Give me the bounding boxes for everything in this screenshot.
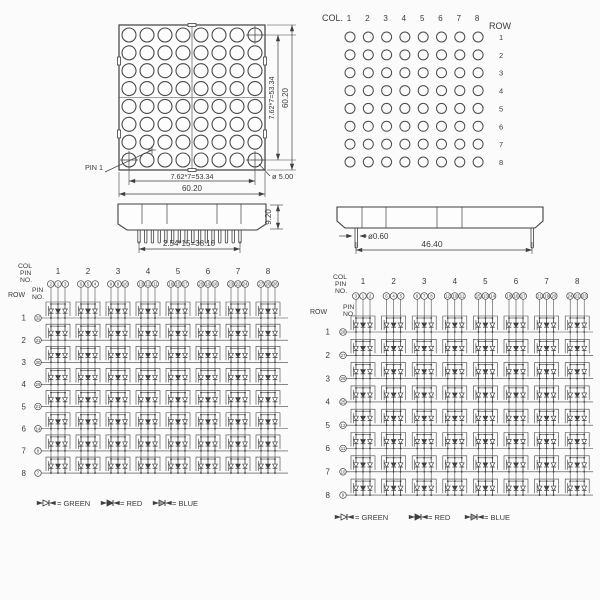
led-cell bbox=[196, 435, 220, 452]
led-cell bbox=[226, 413, 250, 430]
row-number: 2 bbox=[22, 336, 27, 345]
package-profile-side bbox=[337, 207, 543, 228]
led-pad bbox=[363, 121, 373, 131]
pin-number: 15 bbox=[476, 294, 481, 299]
led-cell bbox=[256, 302, 280, 319]
pin-number: 27 bbox=[341, 353, 346, 358]
led-cell bbox=[166, 413, 190, 430]
schL-legend-red-label: = RED bbox=[120, 499, 143, 508]
pin bbox=[232, 230, 234, 243]
back-view-panel: 1234567812345678 COL. ROW bbox=[322, 13, 512, 167]
pin-number: 11 bbox=[341, 446, 346, 451]
pin-number: 10 bbox=[123, 282, 128, 287]
dimension-arrow bbox=[259, 192, 265, 196]
led-cell bbox=[351, 363, 375, 380]
row-number: 5 bbox=[22, 402, 27, 411]
led-cell bbox=[504, 339, 528, 356]
pin-number: 22 bbox=[236, 282, 241, 287]
led-pad bbox=[437, 157, 447, 167]
dimension-arrow bbox=[276, 205, 280, 211]
dimension-arrow bbox=[139, 247, 145, 251]
led-cell bbox=[535, 316, 559, 333]
led-pad bbox=[363, 139, 373, 149]
front-view-panel: 7.62*7=53.34 60.20 7.62*7=53.34 60.20 ø … bbox=[85, 24, 296, 198]
led-cell bbox=[136, 391, 160, 408]
dimension-arrow bbox=[37, 501, 43, 505]
pin bbox=[151, 230, 153, 243]
led-pad bbox=[363, 103, 373, 113]
pin-number: 24 bbox=[243, 282, 248, 287]
led-cell bbox=[76, 368, 100, 385]
led-cell bbox=[166, 391, 190, 408]
led-cell bbox=[412, 363, 436, 380]
led-cell bbox=[196, 413, 220, 430]
pin-number: 14 bbox=[36, 426, 41, 431]
pin-number: 13 bbox=[138, 282, 143, 287]
led-cell bbox=[535, 363, 559, 380]
led-cell bbox=[412, 433, 436, 450]
front-dim-col-pitch: 7.62*7=53.34 bbox=[171, 172, 214, 181]
led-pad bbox=[455, 139, 465, 149]
side-view-front-panel: 2.54*15=38.10 9.20 bbox=[118, 204, 283, 253]
dimension-arrow bbox=[276, 154, 280, 160]
pin-number: 11 bbox=[153, 282, 158, 287]
schR-pin-no-1: PIN bbox=[343, 304, 354, 311]
pin-number: 16 bbox=[168, 282, 173, 287]
pin-number: 21 bbox=[537, 294, 542, 299]
led-cell bbox=[412, 409, 436, 426]
led-cell bbox=[443, 363, 467, 380]
dimension-arrow bbox=[465, 515, 471, 519]
led-pad bbox=[473, 86, 483, 96]
led-cell bbox=[256, 368, 280, 385]
pin-number: 30 bbox=[36, 360, 41, 365]
led-pad bbox=[473, 50, 483, 60]
led-cell bbox=[226, 435, 250, 452]
led-cell bbox=[382, 409, 406, 426]
led-pad bbox=[437, 68, 447, 78]
row-number: 1 bbox=[326, 328, 331, 337]
led-cell bbox=[504, 386, 528, 403]
led-cell bbox=[106, 435, 130, 452]
col-number: 4 bbox=[453, 277, 458, 286]
led-cell bbox=[351, 479, 375, 496]
led-cell bbox=[76, 346, 100, 363]
led-pad bbox=[418, 103, 428, 113]
led-cell bbox=[166, 435, 190, 452]
led-pad bbox=[437, 32, 447, 42]
back-col-number: 6 bbox=[438, 14, 443, 23]
led-cell bbox=[351, 456, 375, 473]
led-pad bbox=[345, 86, 355, 96]
col-number: 3 bbox=[116, 267, 121, 276]
led-cell bbox=[443, 316, 467, 333]
back-col-number: 2 bbox=[365, 14, 370, 23]
led-cell bbox=[565, 386, 589, 403]
pin-number: 12 bbox=[445, 294, 450, 299]
row-number: 4 bbox=[22, 380, 27, 389]
led-cell bbox=[443, 433, 467, 450]
led-cell bbox=[106, 324, 130, 341]
led-pad bbox=[400, 121, 410, 131]
schematic-right-panel: 1312264539784121011515131461816177211920… bbox=[310, 274, 593, 522]
led-cell bbox=[76, 324, 100, 341]
schL-pin-no-1: PIN bbox=[32, 287, 43, 294]
led-cell bbox=[382, 433, 406, 450]
led-pad bbox=[345, 121, 355, 131]
back-row-number: 7 bbox=[499, 140, 503, 149]
col-number: 2 bbox=[86, 267, 91, 276]
led-pad bbox=[455, 68, 465, 78]
led-cell bbox=[196, 346, 220, 363]
led-pad bbox=[473, 139, 483, 149]
dimension-arrow bbox=[234, 247, 240, 251]
schL-col-header-1: COL bbox=[18, 263, 32, 270]
led-cell bbox=[443, 339, 467, 356]
pin bbox=[145, 230, 147, 243]
pin-number: 26 bbox=[266, 282, 271, 287]
led-pad bbox=[382, 50, 392, 60]
pin-number: 18 bbox=[213, 282, 218, 287]
schL-legend-blue-label: = BLUE bbox=[172, 499, 198, 508]
pin-number: 16 bbox=[514, 294, 519, 299]
back-col-number: 1 bbox=[347, 14, 352, 23]
col-number: 1 bbox=[56, 267, 61, 276]
sidef-dim-pin-pitch: 2.54*15=38.10 bbox=[163, 239, 216, 248]
led-cell bbox=[504, 363, 528, 380]
led-cell bbox=[166, 346, 190, 363]
back-col-number: 4 bbox=[402, 14, 407, 23]
dimension-arrow bbox=[356, 248, 362, 252]
schR-legend-blue-label: = BLUE bbox=[484, 513, 510, 522]
led-cell bbox=[76, 413, 100, 430]
front-dim-width: 60.20 bbox=[182, 184, 203, 193]
led-cell bbox=[256, 457, 280, 474]
pin-number: 32 bbox=[36, 316, 41, 321]
row-number: 6 bbox=[22, 424, 27, 433]
led-pad bbox=[455, 157, 465, 167]
col-number: 8 bbox=[575, 277, 580, 286]
pin-number: 28 bbox=[341, 330, 346, 335]
row-number: 4 bbox=[326, 398, 331, 407]
back-col-number: 8 bbox=[475, 14, 480, 23]
pin-number: 20 bbox=[551, 294, 556, 299]
sider-dim-pin-span: 46.40 bbox=[421, 239, 443, 249]
sider-dim-pin-diameter: ø0.60 bbox=[368, 232, 389, 241]
red-diode-legend-symbol bbox=[101, 500, 120, 506]
pin-number: 19 bbox=[206, 282, 211, 287]
led-pad bbox=[382, 68, 392, 78]
schL-col-header-2: PIN bbox=[20, 270, 31, 277]
row-number: 8 bbox=[326, 491, 331, 500]
led-pad bbox=[382, 86, 392, 96]
pin-number: 25 bbox=[341, 400, 346, 405]
row-number: 2 bbox=[326, 351, 331, 360]
led-cell bbox=[382, 339, 406, 356]
led-cell bbox=[46, 457, 70, 474]
led-cell bbox=[382, 363, 406, 380]
led-cell bbox=[565, 339, 589, 356]
back-row-number: 2 bbox=[499, 51, 503, 60]
led-pad bbox=[382, 121, 392, 131]
led-pad bbox=[455, 50, 465, 60]
led-cell bbox=[473, 339, 497, 356]
led-cell bbox=[504, 409, 528, 426]
dimension-arrow bbox=[290, 164, 294, 170]
led-pad bbox=[382, 157, 392, 167]
led-cell bbox=[46, 302, 70, 319]
led-cell bbox=[46, 391, 70, 408]
led-cell bbox=[46, 413, 70, 430]
row-number: 5 bbox=[326, 421, 331, 430]
pin bbox=[219, 230, 221, 243]
led-cell bbox=[196, 457, 220, 474]
back-row-number: 6 bbox=[499, 122, 503, 131]
red-diode-legend-symbol bbox=[409, 514, 428, 520]
led-cell bbox=[351, 409, 375, 426]
pin-number: 17 bbox=[183, 282, 188, 287]
led-cell bbox=[166, 368, 190, 385]
row-number: 3 bbox=[22, 358, 27, 367]
led-cell bbox=[412, 386, 436, 403]
led-cell bbox=[256, 435, 280, 452]
back-row-number: 3 bbox=[499, 69, 503, 78]
pin-number: 23 bbox=[582, 294, 587, 299]
led-cell bbox=[504, 433, 528, 450]
pin-number: 21 bbox=[36, 404, 41, 409]
pin bbox=[158, 230, 160, 243]
front-dot-diameter-label: ø 5.00 bbox=[272, 172, 293, 181]
led-pad bbox=[363, 32, 373, 42]
led-cell bbox=[136, 368, 160, 385]
led-cell bbox=[226, 368, 250, 385]
schematic-left-panel: 1213265439810413121151615176201918723222… bbox=[8, 263, 288, 508]
led-cell bbox=[565, 409, 589, 426]
pin-number: 10 bbox=[341, 469, 346, 474]
led-cell bbox=[196, 391, 220, 408]
pin-number: 17 bbox=[521, 294, 526, 299]
led-cell bbox=[351, 386, 375, 403]
led-cell bbox=[256, 413, 280, 430]
back-row-number: 1 bbox=[499, 33, 503, 42]
dimension-arrow bbox=[526, 248, 532, 252]
led-cell bbox=[443, 409, 467, 426]
row-number: 1 bbox=[22, 314, 27, 323]
led-cell bbox=[136, 435, 160, 452]
led-cell bbox=[473, 386, 497, 403]
led-pad bbox=[400, 139, 410, 149]
pin-number: 28 bbox=[273, 282, 278, 287]
pin-number: 10 bbox=[452, 294, 457, 299]
led-pad bbox=[437, 103, 447, 113]
led-pad bbox=[345, 103, 355, 113]
led-pad bbox=[473, 103, 483, 113]
dimension-arrow bbox=[276, 35, 280, 41]
pin-number: 19 bbox=[544, 294, 549, 299]
led-cell bbox=[226, 457, 250, 474]
dimension-arrow bbox=[346, 234, 352, 238]
led-cell bbox=[136, 324, 160, 341]
row-number: 6 bbox=[326, 444, 331, 453]
led-cell bbox=[226, 346, 250, 363]
led-cell bbox=[46, 346, 70, 363]
led-cell bbox=[382, 386, 406, 403]
col-number: 5 bbox=[483, 277, 488, 286]
col-number: 1 bbox=[361, 277, 366, 286]
led-pad bbox=[345, 139, 355, 149]
front-dim-row-pitch: 7.62*7=53.34 bbox=[267, 77, 276, 120]
led-cell bbox=[565, 479, 589, 496]
led-pad bbox=[473, 157, 483, 167]
schR-col-header-3: NO. bbox=[335, 288, 347, 295]
led-pad bbox=[400, 68, 410, 78]
led-cell bbox=[256, 391, 280, 408]
led-cell bbox=[565, 363, 589, 380]
led-pad bbox=[382, 103, 392, 113]
led-pad bbox=[455, 86, 465, 96]
led-matrix-datasheet: 7.62*7=53.34 60.20 7.62*7=53.34 60.20 ø … bbox=[0, 0, 600, 600]
led-pad bbox=[418, 86, 428, 96]
led-cell bbox=[351, 433, 375, 450]
led-cell bbox=[473, 433, 497, 450]
led-cell bbox=[106, 346, 130, 363]
back-col-number: 7 bbox=[457, 14, 462, 23]
dimension-arrow bbox=[153, 501, 159, 505]
led-cell bbox=[136, 346, 160, 363]
dimension-arrow bbox=[119, 192, 125, 196]
dimension-arrow bbox=[249, 179, 255, 183]
front-pin1-label: PIN 1 bbox=[85, 163, 103, 172]
row-number: 8 bbox=[22, 469, 27, 478]
led-cell bbox=[382, 479, 406, 496]
led-cell bbox=[412, 316, 436, 333]
led-cell bbox=[256, 346, 280, 363]
pin-number: 15 bbox=[176, 282, 181, 287]
blue-diode-legend-symbol bbox=[153, 500, 172, 506]
led-cell bbox=[412, 339, 436, 356]
pin-number: 24 bbox=[568, 294, 573, 299]
led-pad bbox=[363, 86, 373, 96]
pin-number: 11 bbox=[460, 294, 465, 299]
package-profile bbox=[118, 204, 266, 230]
pin bbox=[225, 230, 227, 243]
dimension-arrow bbox=[276, 223, 280, 229]
led-cell bbox=[382, 456, 406, 473]
pin-number: 14 bbox=[490, 294, 495, 299]
col-number: 6 bbox=[206, 267, 211, 276]
led-cell bbox=[196, 368, 220, 385]
pin-number: 12 bbox=[146, 282, 151, 287]
schR-col-header-1: COL bbox=[333, 274, 347, 281]
schR-col-header-2: PIN bbox=[335, 281, 346, 288]
led-pad bbox=[400, 86, 410, 96]
blue-diode-legend-symbol bbox=[465, 514, 484, 520]
led-cell bbox=[565, 316, 589, 333]
col-number: 2 bbox=[391, 277, 396, 286]
datasheet-canvas: 7.62*7=53.34 60.20 7.62*7=53.34 60.20 ø … bbox=[0, 0, 600, 600]
led-cell bbox=[412, 456, 436, 473]
led-pad bbox=[437, 121, 447, 131]
back-col-number: 5 bbox=[420, 14, 425, 23]
pin-number: 27 bbox=[258, 282, 263, 287]
led-cell bbox=[473, 456, 497, 473]
led-cell bbox=[46, 435, 70, 452]
led-cell bbox=[136, 457, 160, 474]
dimension-arrow bbox=[335, 515, 341, 519]
dimension-arrow bbox=[360, 234, 366, 238]
led-pad bbox=[345, 50, 355, 60]
led-cell bbox=[473, 316, 497, 333]
led-cell bbox=[76, 391, 100, 408]
row-number: 7 bbox=[326, 468, 331, 477]
led-cell bbox=[226, 391, 250, 408]
led-pad bbox=[345, 68, 355, 78]
back-col-label: COL. bbox=[322, 13, 343, 23]
back-led-grid bbox=[345, 32, 483, 167]
led-pad bbox=[418, 50, 428, 60]
led-pad bbox=[418, 139, 428, 149]
back-row-number: 8 bbox=[499, 158, 503, 167]
led-cell bbox=[136, 302, 160, 319]
front-dim-height: 60.20 bbox=[281, 87, 290, 108]
row-number: 7 bbox=[22, 447, 27, 456]
schR-legend-green-label: = GREEN bbox=[355, 513, 388, 522]
pin-number: 13 bbox=[483, 294, 488, 299]
green-diode-legend-symbol bbox=[37, 500, 56, 506]
pin-number: 29 bbox=[36, 382, 41, 387]
led-pad bbox=[418, 68, 428, 78]
led-cell bbox=[196, 302, 220, 319]
led-cell bbox=[443, 456, 467, 473]
led-cell bbox=[351, 316, 375, 333]
led-pad bbox=[473, 121, 483, 131]
led-cell bbox=[106, 457, 130, 474]
led-cell bbox=[565, 456, 589, 473]
led-cell bbox=[166, 457, 190, 474]
led-cell bbox=[351, 339, 375, 356]
col-number: 3 bbox=[422, 277, 427, 286]
led-cell bbox=[106, 302, 130, 319]
led-pad bbox=[455, 103, 465, 113]
back-row-number: 4 bbox=[499, 87, 503, 96]
led-pad bbox=[437, 86, 447, 96]
schL-pin-no-2: NO. bbox=[32, 294, 44, 301]
led-pad bbox=[400, 50, 410, 60]
led-pad bbox=[455, 121, 465, 131]
led-cell bbox=[535, 456, 559, 473]
col-number: 5 bbox=[176, 267, 181, 276]
led-cell bbox=[196, 324, 220, 341]
col-number: 4 bbox=[146, 267, 151, 276]
pin-number: 31 bbox=[36, 338, 41, 343]
led-pad bbox=[382, 139, 392, 149]
led-cell bbox=[256, 324, 280, 341]
led-cell bbox=[412, 479, 436, 496]
led-pad bbox=[473, 32, 483, 42]
col-number: 8 bbox=[266, 267, 271, 276]
schR-row-label: ROW bbox=[310, 309, 328, 316]
led-cell bbox=[443, 386, 467, 403]
side-view-side-panel: ø0.60 46.40 bbox=[337, 207, 543, 254]
led-cell bbox=[76, 435, 100, 452]
pin-number: 23 bbox=[228, 282, 233, 287]
led-cell bbox=[76, 457, 100, 474]
led-cell bbox=[535, 433, 559, 450]
led-pad bbox=[418, 157, 428, 167]
back-col-number: 3 bbox=[383, 14, 388, 23]
led-cell bbox=[46, 368, 70, 385]
row-number: 3 bbox=[326, 374, 331, 383]
